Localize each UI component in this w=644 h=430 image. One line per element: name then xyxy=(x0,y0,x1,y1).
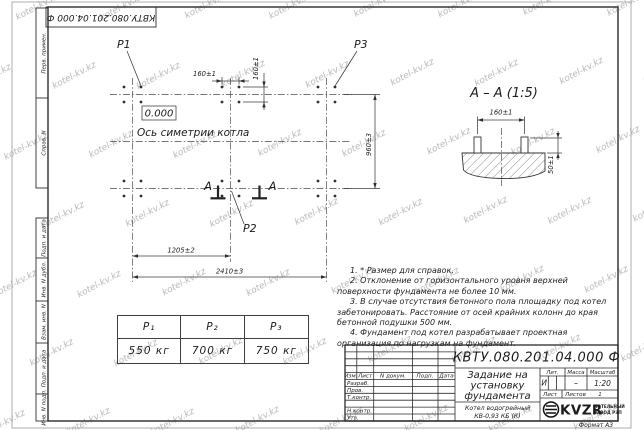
label-p3: P3 xyxy=(354,38,368,51)
doc-title-line1: Задание на xyxy=(467,370,528,381)
row-nkontr: Н.контр. xyxy=(347,409,372,415)
lit-header: Лит. xyxy=(545,370,558,376)
dim-960: 960±3 xyxy=(365,133,373,156)
label-p1: P1 xyxy=(117,38,131,51)
mass-header: Масса xyxy=(567,370,584,376)
doc-title-line2: установку xyxy=(470,381,526,392)
format-label: Формат А3 xyxy=(579,422,613,429)
section-title: А – А (1:5) xyxy=(469,86,538,101)
col-data: Дата xyxy=(438,374,454,380)
margin-label-inv-podl: Инв. N подл. xyxy=(42,389,48,426)
note-1: 1. * Размер для справок. xyxy=(337,266,618,276)
product-name-line1: Котел водогрейный xyxy=(465,405,530,412)
dim-160-side: 160±1 xyxy=(252,57,260,80)
logo-caption-line2: ЗАВОД РЭП xyxy=(594,410,622,415)
watermark-layer xyxy=(0,0,644,430)
load-table-header-p3: P₃ xyxy=(245,316,308,339)
lit-value: И xyxy=(541,379,547,388)
drawing-canvas: kotel-kv.kz kotel-kv.kz Перв. примен. Сп… xyxy=(0,0,644,430)
mass-value: – xyxy=(574,379,578,388)
margin-label-sprav-n: Справ. N xyxy=(42,130,48,155)
note-4: 4. Фундамент под котел разрабатывает про… xyxy=(337,328,618,349)
sheets-value: 1 xyxy=(598,392,602,398)
axis-of-symmetry-label: Ось симетрии котла xyxy=(137,127,249,139)
col-izm: Изм. xyxy=(344,374,357,380)
load-table-value-p1: 550 кг xyxy=(118,339,181,363)
load-table: P₁ P₂ P₃ 550 кг 700 кг 750 кг xyxy=(117,315,309,364)
row-tkontr: Т.контр. xyxy=(347,395,371,401)
cut-letter-right: А xyxy=(268,179,277,193)
doc-title-line3: фундамента xyxy=(464,391,530,402)
scale-value: 1:20 xyxy=(594,379,611,388)
section-dim-50: 50±1 xyxy=(547,155,555,174)
top-stamp-number: КВТУ.080.201.04.000 Ф xyxy=(46,12,155,22)
col-podp: Подп. xyxy=(417,374,434,380)
col-list: Лист xyxy=(357,374,373,380)
dim-160-top: 160±1 xyxy=(193,70,216,78)
load-table-value-p3: 750 кг xyxy=(245,339,308,363)
sheets-label: Листов xyxy=(564,392,586,398)
dim-2410: 2410±3 xyxy=(216,268,243,276)
margin-label-podp-data-2: Подп. и дата xyxy=(42,349,48,387)
drawing-sheet: kotel-kv.kz kotel-kv.kz Перв. примен. Сп… xyxy=(0,0,644,430)
note-3: 3. В случае отсутствия бетонного пола пл… xyxy=(337,297,618,328)
note-2: 2. Отклонение от горизонтального уровня … xyxy=(337,276,618,297)
row-razrab: Разраб. xyxy=(347,381,369,387)
margin-label-podp-data-1: Подп. и дата xyxy=(42,219,48,257)
load-table-value-p2: 700 кг xyxy=(181,339,244,363)
load-table-header-p2: P₂ xyxy=(181,316,244,339)
col-ndoc: N докум. xyxy=(380,374,406,380)
margin-label-vzam-inv: Взам. инв. N xyxy=(42,304,48,340)
concrete-foundation-block xyxy=(462,153,545,179)
product-name-line2: КВ-0,93 КБ (К) xyxy=(474,413,520,420)
margin-label-perv-primen: Перв. примен. xyxy=(42,32,48,74)
elevation-value: 0.000 xyxy=(145,109,174,120)
sheet-label: Лист xyxy=(542,392,558,398)
margin-label-inv-dubl: Инв. N дубл. xyxy=(42,261,48,297)
notes-block: 1. * Размер для справок. 2. Отклонение о… xyxy=(337,266,618,349)
doc-number: КВТУ.080.201.04.000 Ф xyxy=(453,351,620,366)
dim-1205: 1205±2 xyxy=(167,247,194,255)
row-prov: Пров. xyxy=(347,388,363,394)
elevation-mark: 0.000 xyxy=(142,106,176,120)
scale-header: Масштаб xyxy=(590,370,616,376)
section-dim-160: 160±1 xyxy=(490,109,513,117)
load-table-header-p1: P₁ xyxy=(118,316,181,339)
cut-letter-left: А xyxy=(203,179,212,193)
row-utv: Утв. xyxy=(347,416,359,422)
logo-caption-line1: КОТЕЛЬНЫЙ xyxy=(594,404,625,409)
label-p2: P2 xyxy=(243,222,257,235)
